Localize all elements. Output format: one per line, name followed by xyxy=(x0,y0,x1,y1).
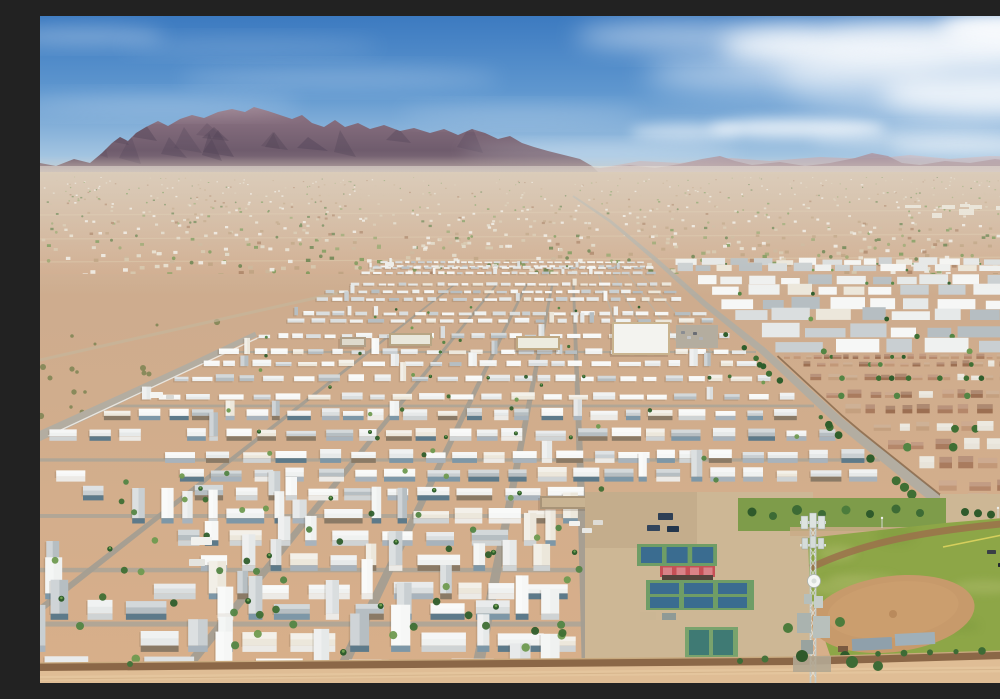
hedge xyxy=(961,508,969,516)
aerial-photo xyxy=(40,16,1000,683)
equipment-cabinet xyxy=(813,616,830,638)
bleachers xyxy=(662,575,713,580)
tennis-courts xyxy=(685,627,738,658)
equipment-cabinet xyxy=(797,613,811,633)
lawn-park xyxy=(738,498,946,531)
antenna-array xyxy=(810,513,817,528)
ramada xyxy=(640,612,656,620)
community-center xyxy=(610,322,670,357)
hedge xyxy=(987,511,995,519)
dugout xyxy=(852,637,893,651)
clubhouse xyxy=(514,336,560,352)
antenna-array xyxy=(802,538,808,549)
annex-building xyxy=(338,337,366,349)
antenna-array xyxy=(810,536,816,548)
shed-row-1 xyxy=(538,496,592,511)
haze-overlay xyxy=(40,166,1000,296)
office-building xyxy=(387,333,432,348)
antenna-array xyxy=(818,538,824,549)
antenna-array xyxy=(801,516,808,529)
dugout xyxy=(895,632,936,646)
antenna-array xyxy=(818,516,825,529)
ramada xyxy=(662,613,676,620)
hedge xyxy=(974,509,982,517)
pitchers-mound xyxy=(889,610,897,618)
scene-svg xyxy=(40,16,1000,683)
parking-lot xyxy=(676,325,718,348)
